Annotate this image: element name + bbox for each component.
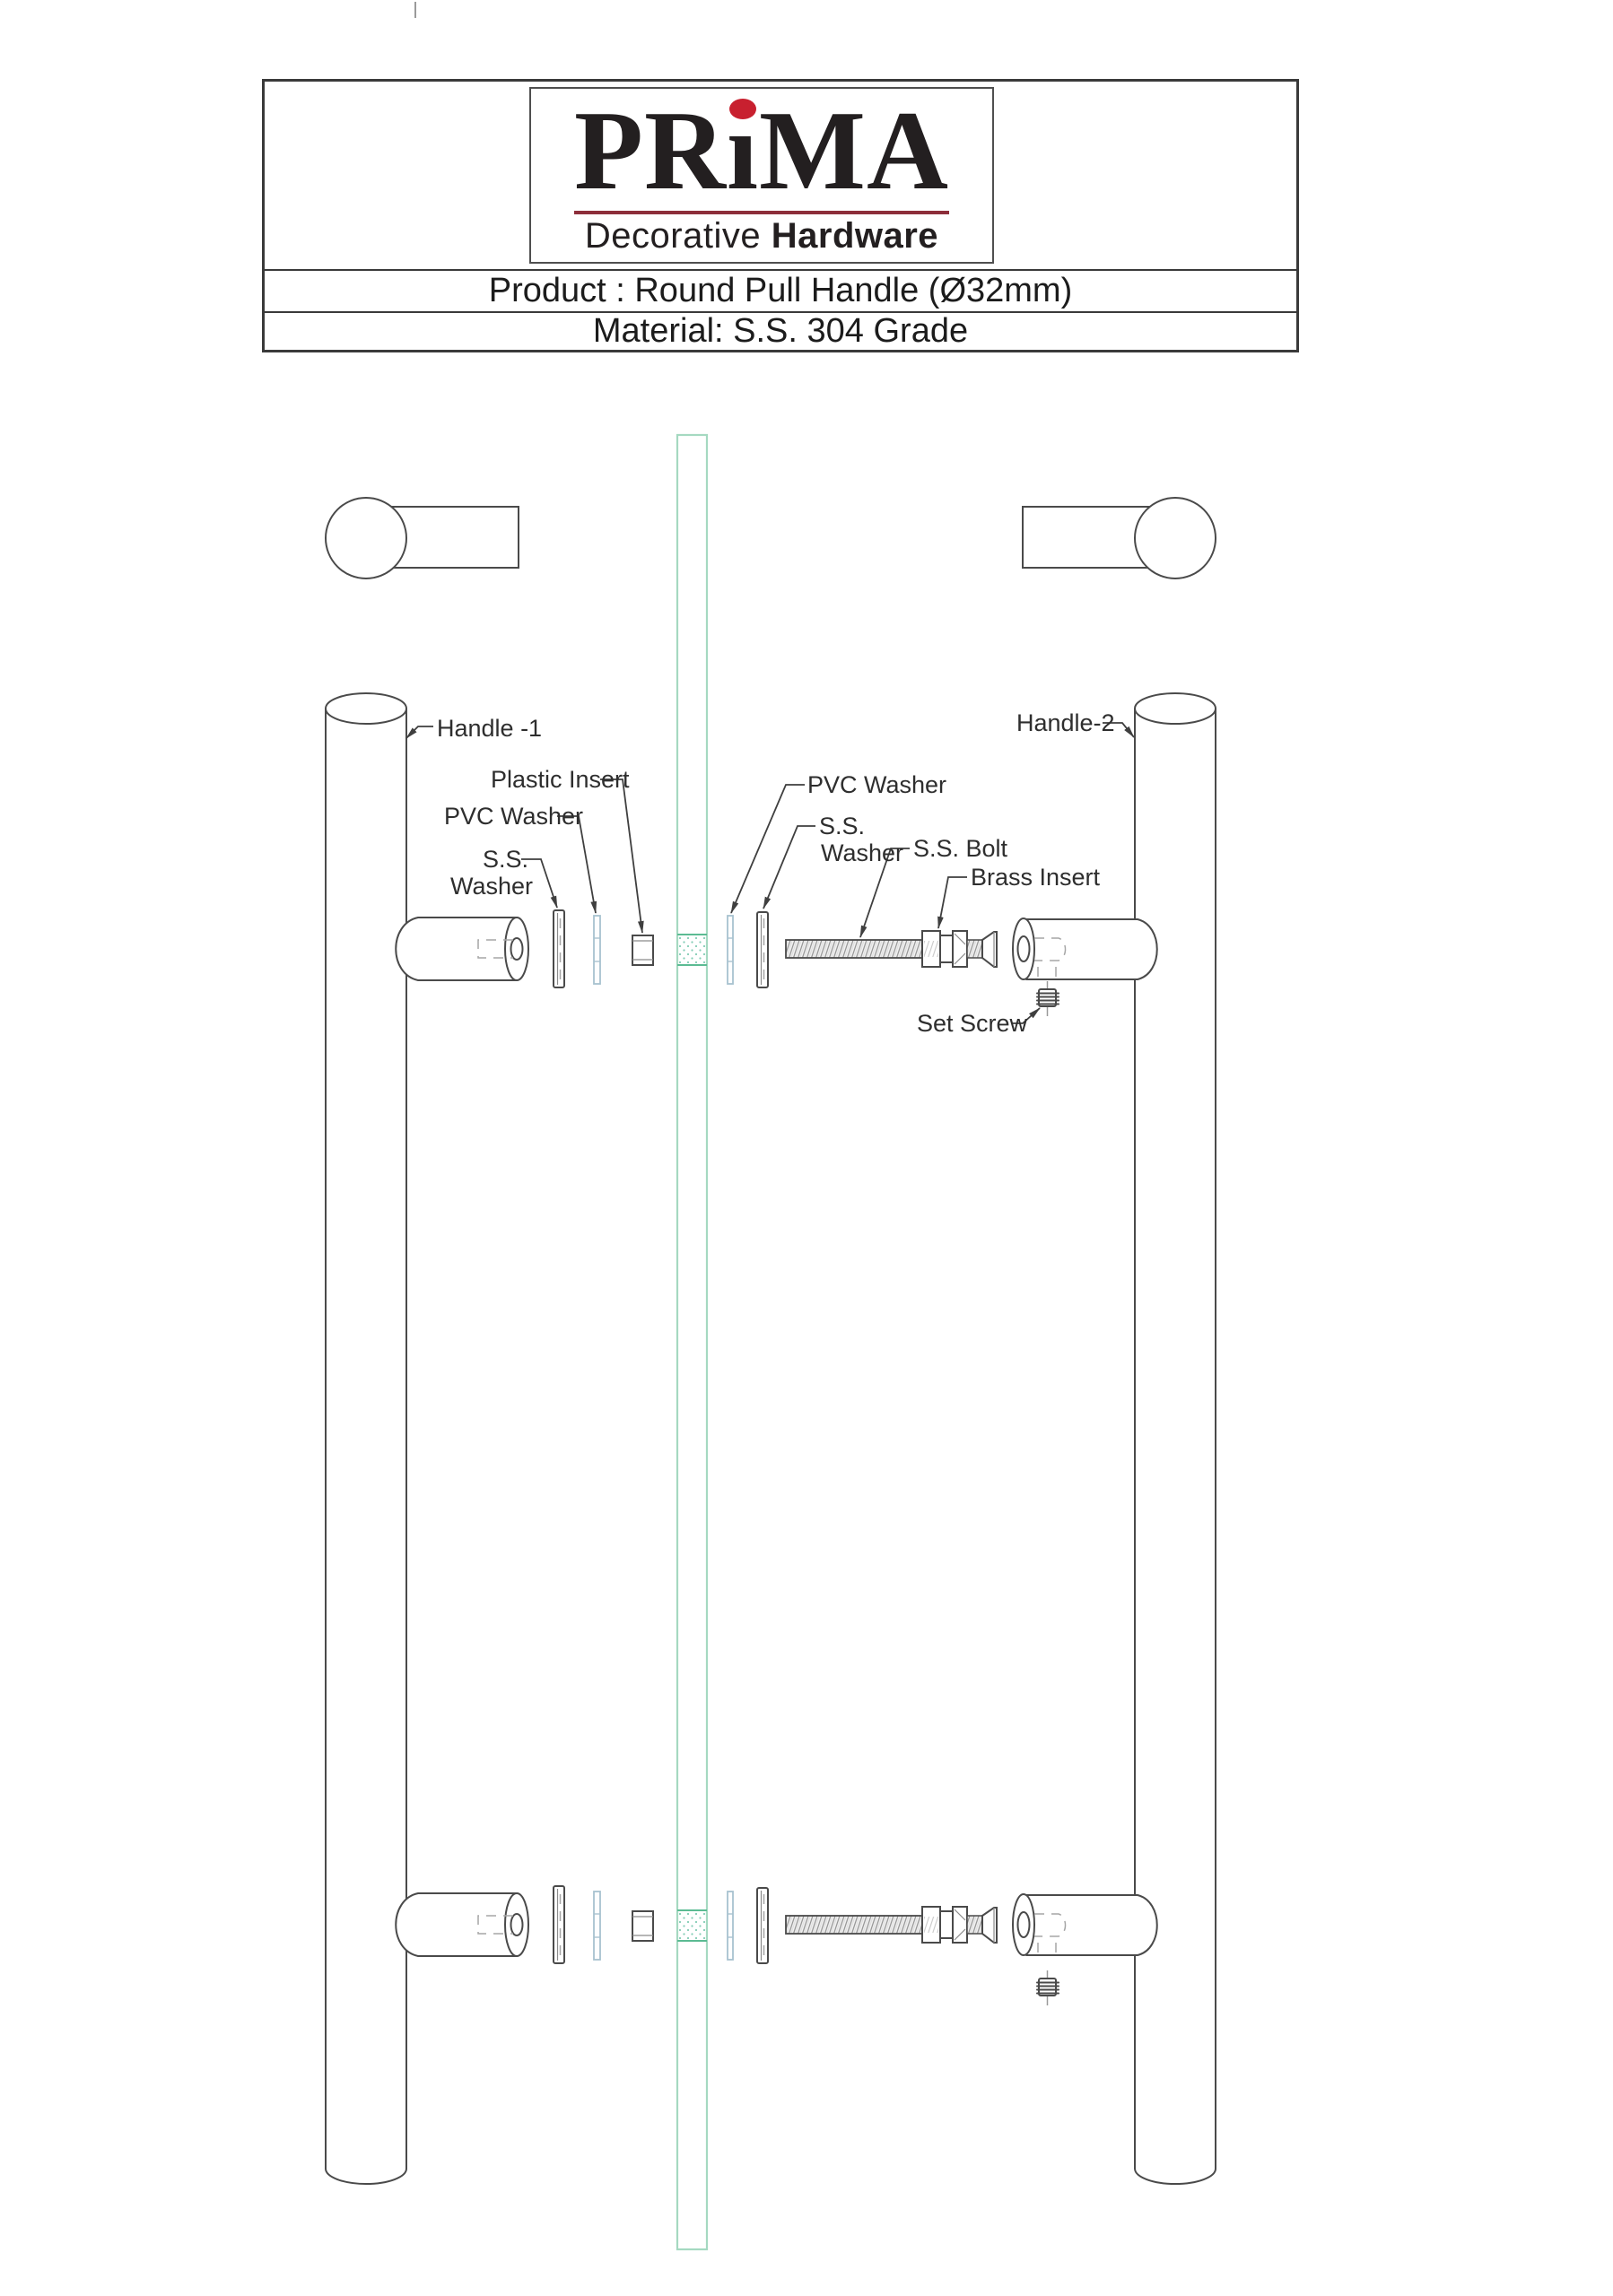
product-text: Product : Round Pull Handle (Ø32mm) bbox=[489, 272, 1073, 310]
fixing-assembly bbox=[396, 910, 1157, 987]
fixing-assembly-bottom bbox=[396, 1886, 1157, 1963]
leader-handle1 bbox=[406, 726, 433, 738]
label-ss-washer-left-line2: Washer bbox=[450, 873, 533, 900]
material-text: Material: S.S. 304 Grade bbox=[593, 312, 968, 351]
glass-hole bbox=[677, 935, 707, 965]
part-labels: Handle -1 Plastic Insert PVC Washer S.S.… bbox=[437, 709, 1115, 1037]
leader-pvc-washer-right bbox=[731, 785, 805, 913]
plastic-insert bbox=[632, 935, 653, 965]
label-handle2: Handle-2 bbox=[1016, 709, 1115, 736]
pvc-washer-right bbox=[728, 916, 733, 984]
leader-plastic-insert bbox=[600, 779, 642, 933]
label-handle1: Handle -1 bbox=[437, 715, 542, 742]
product-row: Product : Round Pull Handle (Ø32mm) bbox=[265, 269, 1296, 311]
pvc-washer-left bbox=[594, 916, 600, 984]
ss-washer-left bbox=[554, 910, 564, 987]
label-pvc-washer-left: PVC Washer bbox=[444, 803, 583, 830]
tagline-hardware: Hardware bbox=[772, 216, 938, 256]
label-ss-bolt: S.S. Bolt bbox=[913, 835, 1008, 862]
handle1-tube bbox=[326, 693, 406, 2184]
handle2-tube bbox=[1135, 693, 1216, 2184]
handle1-socket bbox=[396, 918, 528, 980]
tagline-decorative: Decorative bbox=[585, 216, 761, 256]
logo-red-dot-icon bbox=[729, 99, 756, 119]
label-ss-washer-right-line1: S.S. bbox=[819, 813, 865, 839]
title-block: PRıMA Decorative Hardware Product : Roun… bbox=[262, 79, 1299, 352]
brand-wordmark: PRıMA bbox=[574, 95, 949, 208]
set-screw-part bbox=[1037, 981, 1059, 1024]
leader-pvc-washer-left bbox=[557, 816, 596, 913]
label-brass-insert: Brass Insert bbox=[971, 864, 1101, 891]
label-ss-washer-left-line1: S.S. bbox=[483, 846, 528, 873]
label-pvc-washer-right: PVC Washer bbox=[807, 771, 946, 798]
handle2-top-view bbox=[1023, 498, 1216, 578]
handle1-top-view bbox=[326, 498, 519, 578]
handle2-socket bbox=[1013, 918, 1157, 979]
bolt-head bbox=[967, 932, 997, 967]
glass-panel bbox=[677, 435, 707, 2249]
label-set-screw: Set Screw bbox=[917, 1010, 1028, 1037]
brand-letter-i: ı bbox=[727, 95, 759, 208]
drawing-sheet: Handle -1 Plastic Insert PVC Washer S.S.… bbox=[0, 0, 1613, 2296]
brand-part1: PR bbox=[574, 89, 727, 213]
leader-brass-insert bbox=[938, 877, 967, 928]
leader-ss-washer-right bbox=[763, 826, 815, 909]
brass-insert-part bbox=[922, 931, 967, 967]
brand-tagline: Decorative Hardware bbox=[585, 216, 938, 257]
logo-underline bbox=[574, 211, 949, 214]
material-row: Material: S.S. 304 Grade bbox=[265, 311, 1296, 350]
ss-washer-right bbox=[757, 912, 768, 987]
ss-bolt-rod bbox=[786, 940, 922, 958]
label-plastic-insert: Plastic Insert bbox=[491, 766, 630, 793]
brand-logo: PRıMA Decorative Hardware bbox=[529, 87, 994, 264]
label-ss-washer-right-line2: Washer bbox=[821, 839, 903, 866]
brand-part3: MA bbox=[759, 89, 949, 213]
set-screw-part-bottom bbox=[1037, 1970, 1059, 2013]
